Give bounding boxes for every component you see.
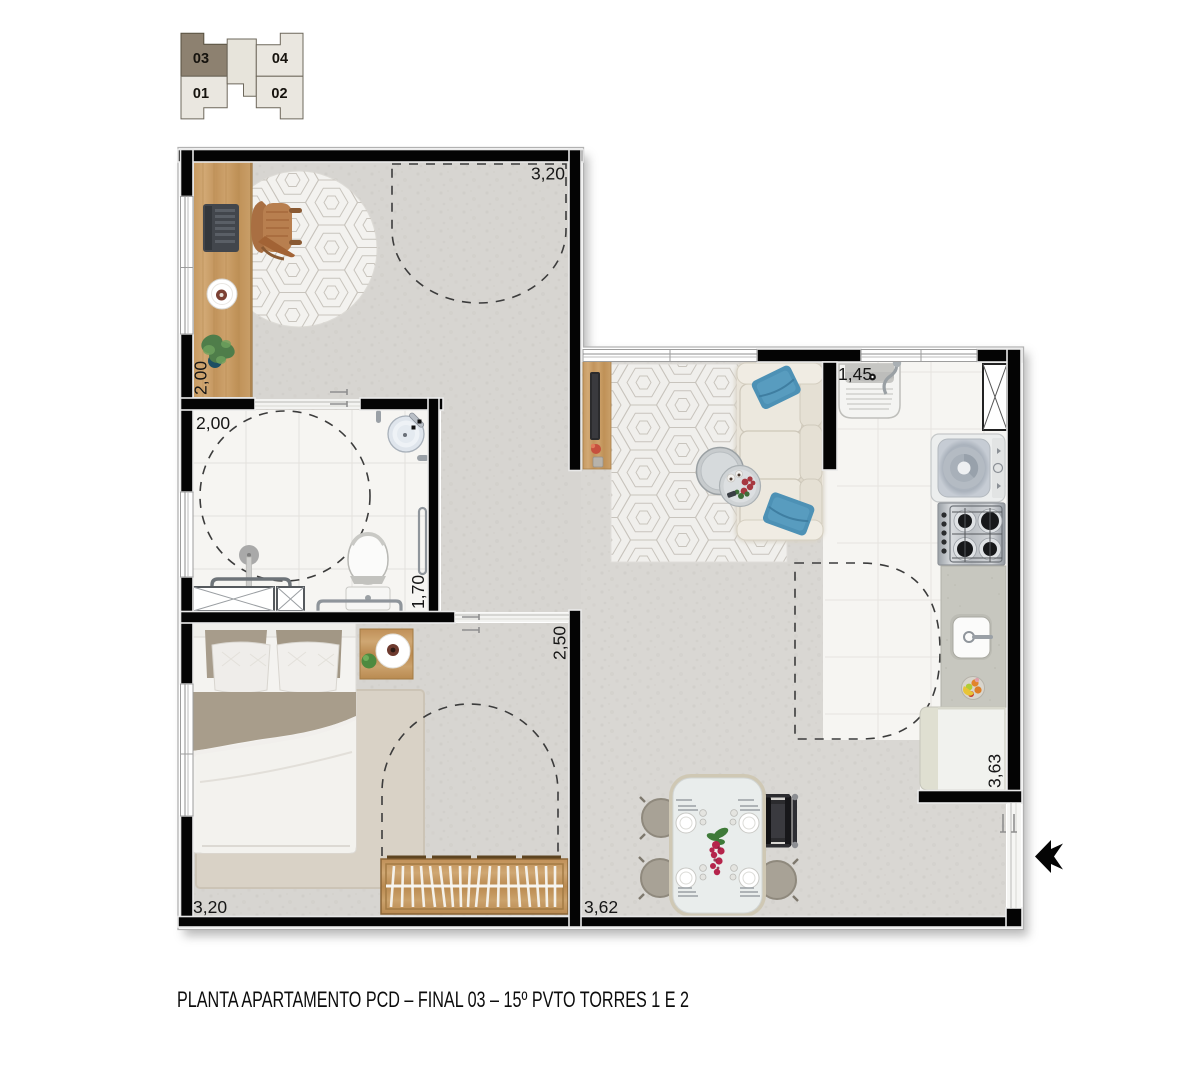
svg-text:04: 04 <box>272 51 288 67</box>
svg-text:3,62: 3,62 <box>584 897 618 917</box>
svg-text:2,00: 2,00 <box>191 361 211 395</box>
svg-text:PLANTA APARTAMENTO PCD – FINAL: PLANTA APARTAMENTO PCD – FINAL 03 – 15º … <box>177 987 689 1012</box>
svg-text:02: 02 <box>271 86 287 102</box>
svg-text:3,63: 3,63 <box>985 754 1005 788</box>
svg-text:3,20: 3,20 <box>193 897 227 917</box>
svg-text:2,50: 2,50 <box>550 626 570 660</box>
svg-text:1,70: 1,70 <box>408 575 428 609</box>
svg-text:01: 01 <box>193 86 209 102</box>
svg-text:2,00: 2,00 <box>196 413 230 433</box>
svg-text:03: 03 <box>193 51 209 67</box>
svg-text:3,20: 3,20 <box>531 164 565 184</box>
svg-text:1,45: 1,45 <box>838 364 872 384</box>
